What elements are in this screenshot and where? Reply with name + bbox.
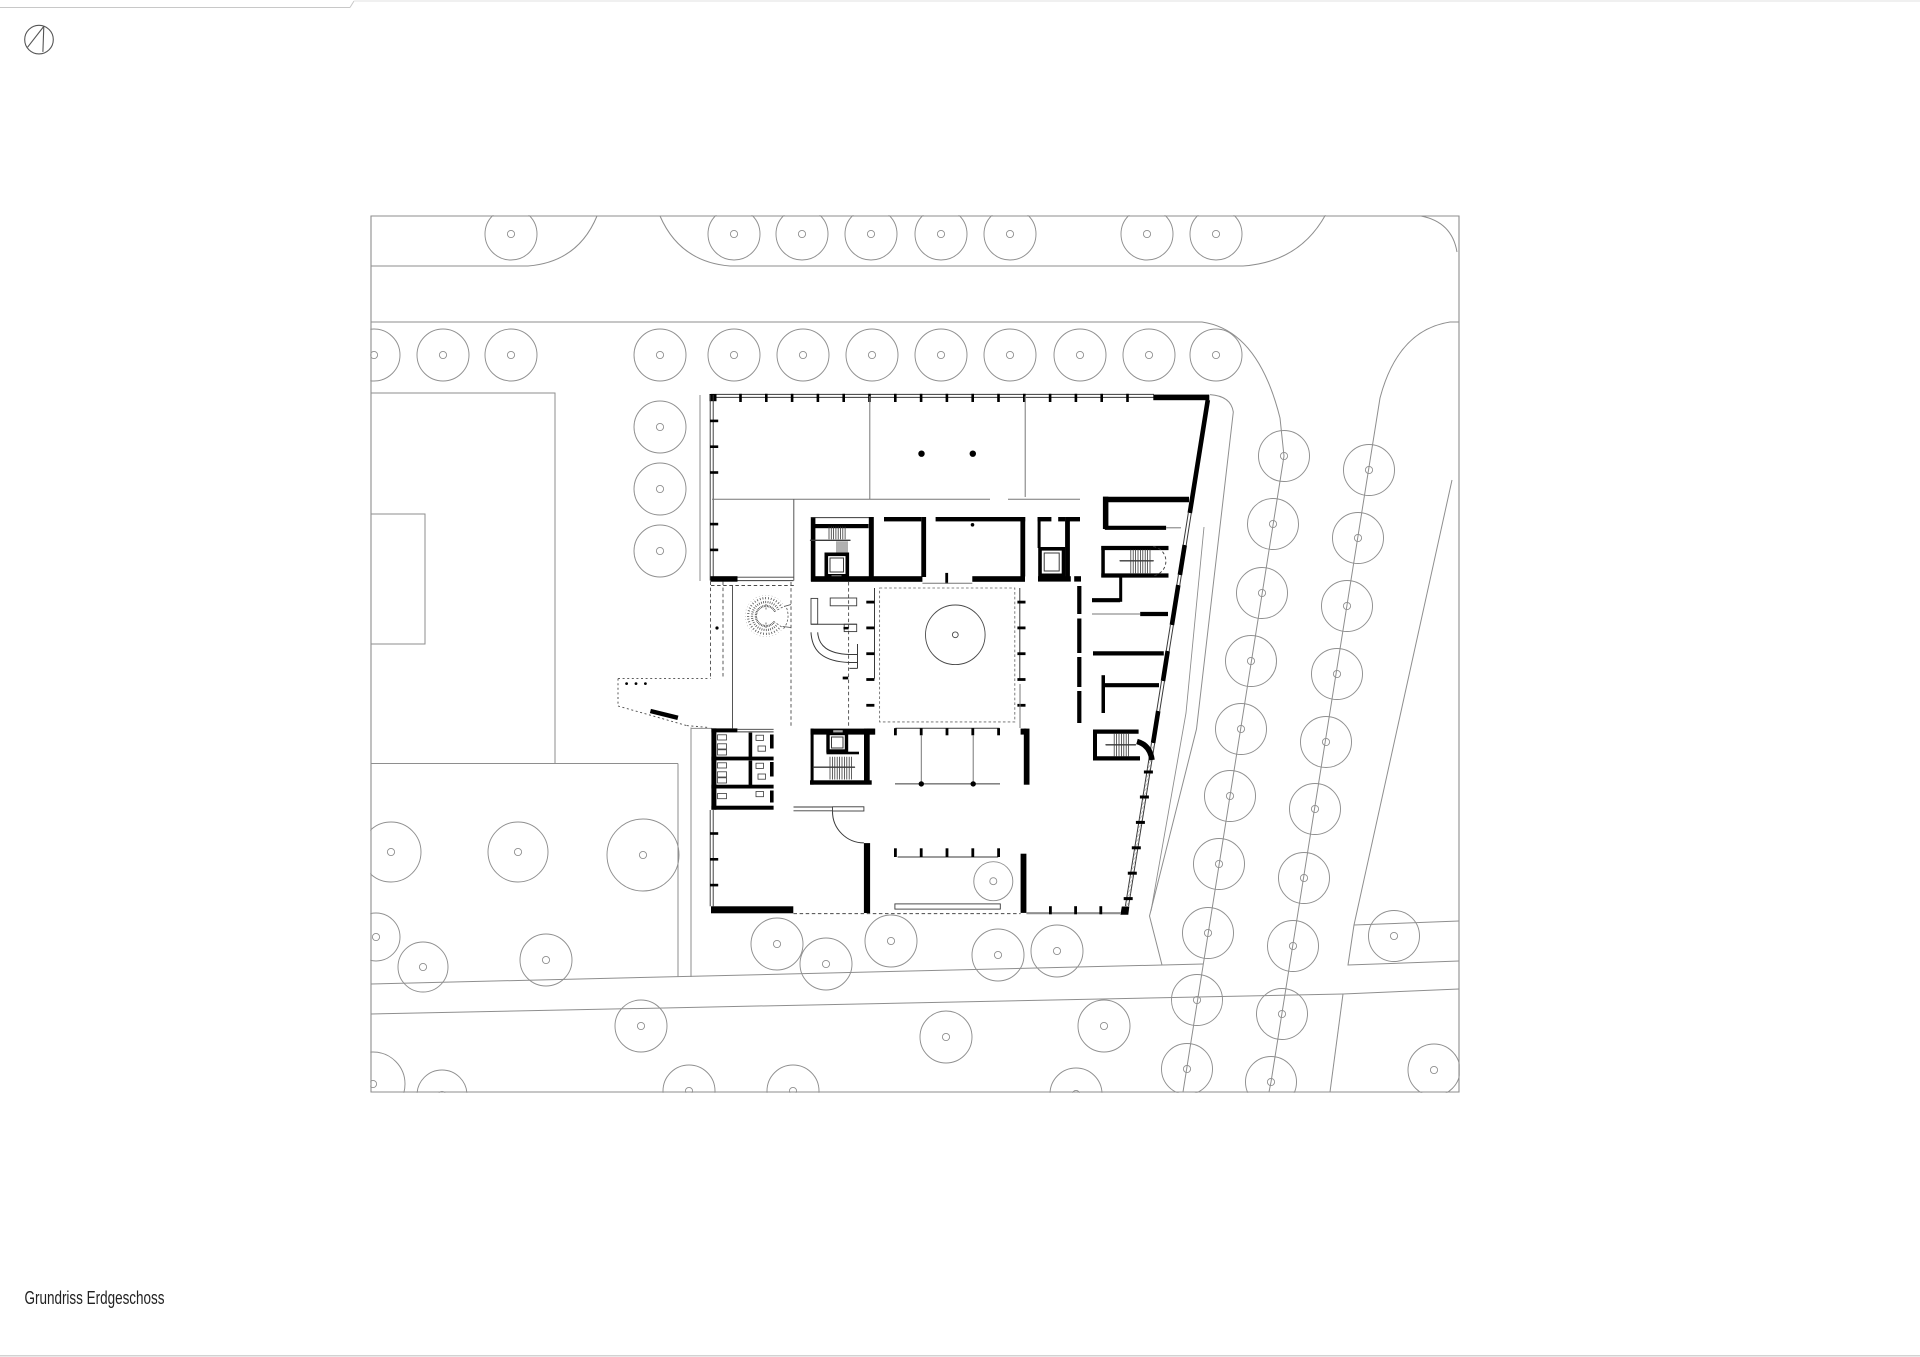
svg-text:Grundriss Erdgeschoss: Grundriss Erdgeschoss	[25, 1288, 165, 1308]
